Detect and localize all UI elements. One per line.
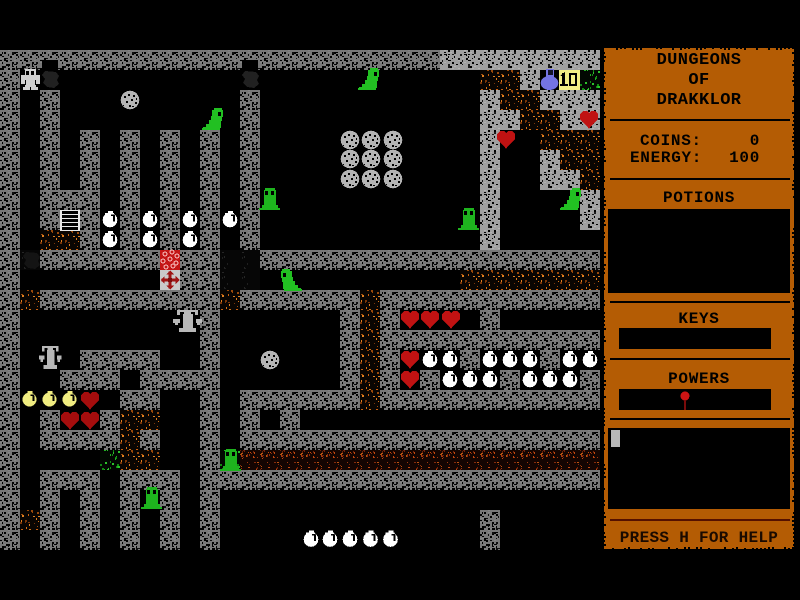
svg-text:POWERS: POWERS — [668, 370, 730, 388]
svg-text:ENERGY:: ENERGY: — [630, 149, 702, 167]
svg-text:0: 0 — [750, 132, 760, 150]
svg-text:KEYS: KEYS — [678, 310, 719, 328]
svg-text:100: 100 — [729, 149, 760, 167]
svg-text:OF: OF — [688, 71, 709, 90]
svg-text:PRESS H FOR HELP: PRESS H FOR HELP — [620, 529, 778, 547]
svg-text:COINS:: COINS: — [640, 132, 702, 150]
svg-text:DRAKKLOR: DRAKKLOR — [657, 91, 742, 110]
svg-text:POTIONS: POTIONS — [663, 189, 735, 207]
svg-text:DUNGEONS: DUNGEONS — [657, 51, 742, 70]
